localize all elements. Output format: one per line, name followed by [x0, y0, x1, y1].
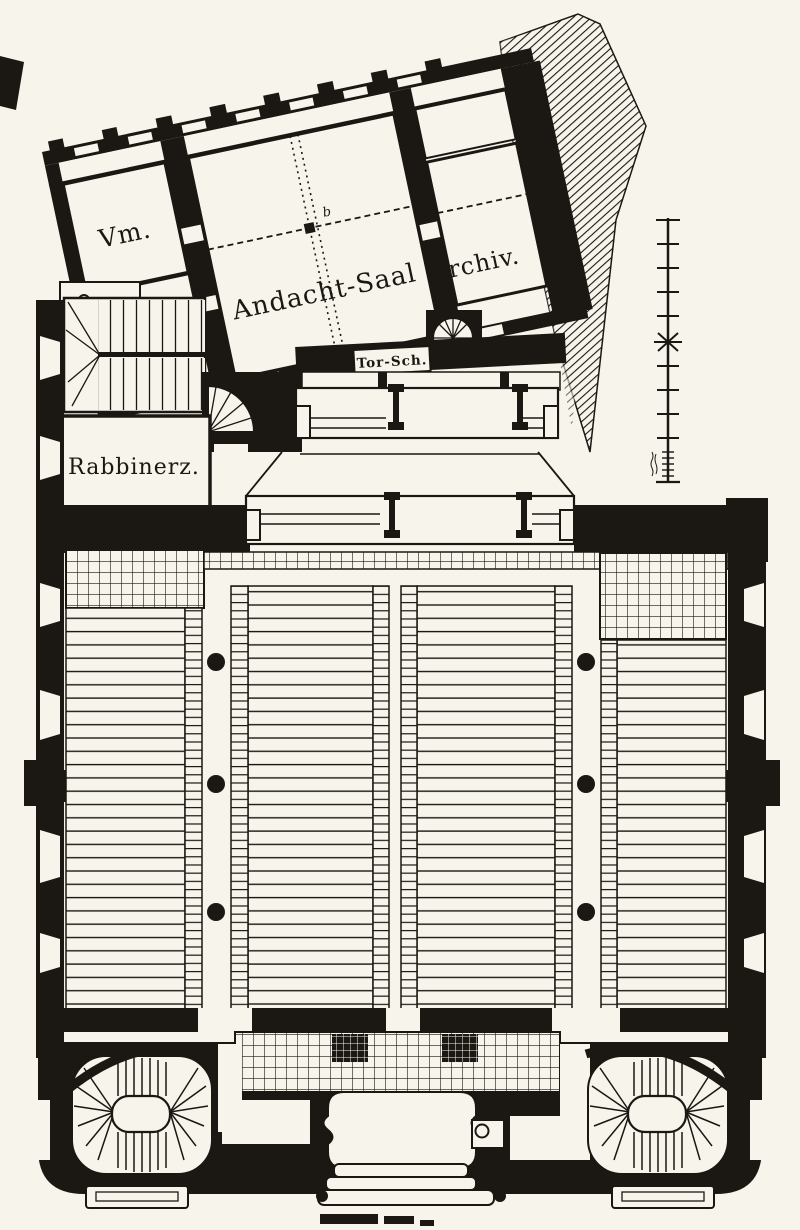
closet-fixture — [476, 1125, 489, 1138]
floor-plan-drawing: b Vm. Andacht-Saal Archiv. — [0, 0, 800, 1230]
stair-hub — [628, 1096, 686, 1132]
vestibule-paving — [235, 1032, 560, 1092]
top-left-wall-fragment — [0, 56, 24, 110]
pews-outer-right — [617, 640, 726, 1018]
floor-plan: b Vm. Andacht-Saal Archiv. — [0, 0, 800, 1230]
pews-center-right — [417, 586, 555, 1018]
room-andacht-saal — [188, 114, 440, 379]
main-staircase — [64, 298, 205, 412]
paving-left — [66, 550, 204, 608]
ark-platform-upper — [296, 384, 558, 438]
beam-intersection-pad — [304, 222, 316, 234]
paving-right — [600, 553, 726, 639]
scale-bar — [651, 218, 682, 482]
room-label-rabbinerzimmer: Rabbinerz. — [68, 455, 200, 480]
pews-outer-left — [66, 608, 185, 1018]
scale-midpoint-star — [654, 330, 682, 354]
scale-caption-squiggle — [651, 452, 657, 476]
pews-center-left — [248, 586, 373, 1018]
stair-hub — [112, 1096, 170, 1132]
bimah-platform-lower — [246, 452, 574, 544]
entrance-zone — [36, 1032, 764, 1226]
entrance-vestibule — [324, 1092, 481, 1168]
